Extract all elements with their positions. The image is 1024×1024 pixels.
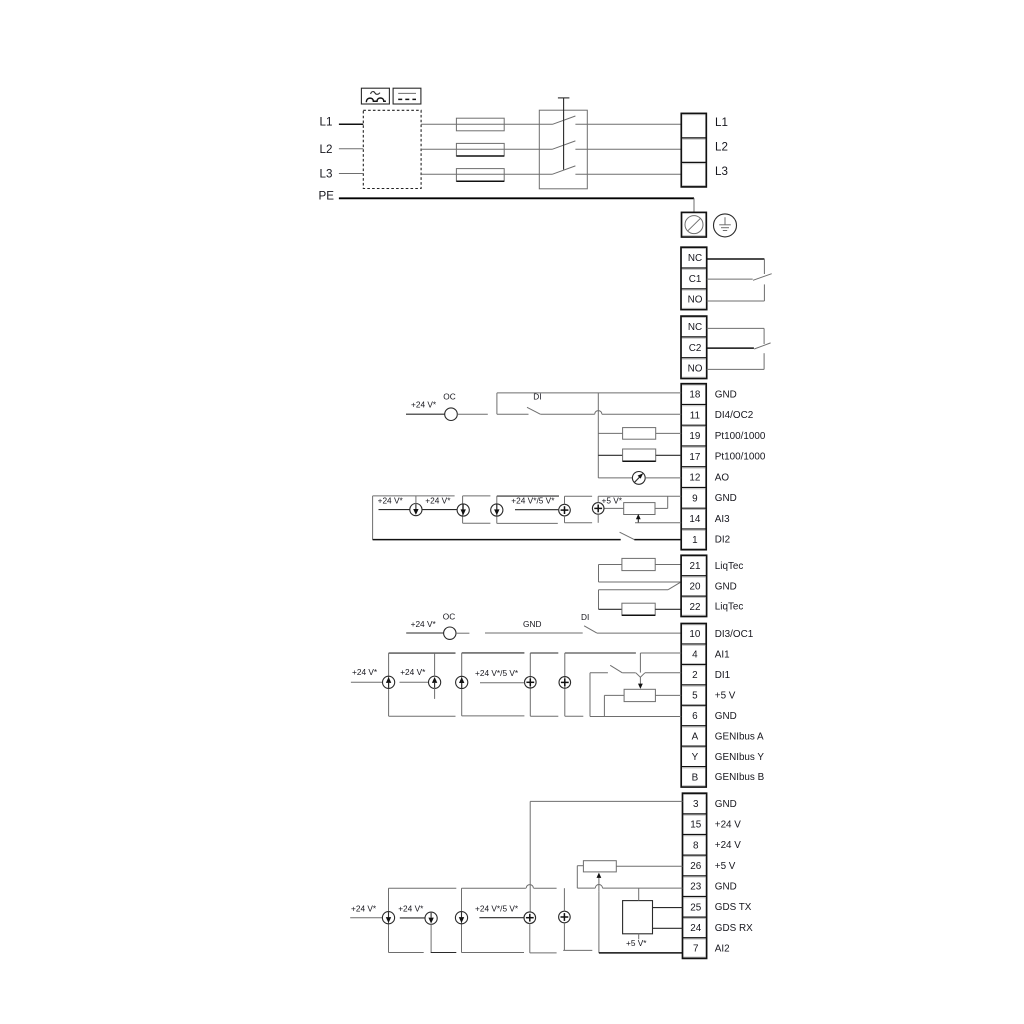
svg-text:+24 V*: +24 V* [411, 399, 437, 409]
svg-text:+5 V: +5 V [715, 861, 736, 872]
svg-text:12: 12 [689, 473, 700, 484]
svg-text:DI: DI [533, 392, 541, 402]
svg-text:Pt100/1000: Pt100/1000 [715, 431, 766, 442]
svg-text:DI3/OC1: DI3/OC1 [715, 629, 754, 640]
svg-text:A: A [692, 731, 699, 742]
svg-text:2: 2 [692, 670, 698, 681]
svg-text:NO: NO [688, 364, 703, 375]
svg-text:AI3: AI3 [715, 514, 730, 525]
svg-text:GND: GND [715, 882, 737, 893]
svg-text:L2: L2 [320, 143, 333, 156]
svg-text:19: 19 [689, 431, 700, 442]
svg-text:DI2: DI2 [715, 535, 730, 546]
svg-text:AO: AO [715, 472, 730, 483]
svg-text:9: 9 [692, 493, 698, 504]
svg-text:+5 V: +5 V [715, 690, 736, 701]
svg-text:8: 8 [693, 840, 699, 851]
svg-text:14: 14 [689, 514, 700, 525]
svg-text:OC: OC [443, 392, 455, 402]
svg-text:GND: GND [715, 799, 737, 810]
svg-text:GENIbus B: GENIbus B [715, 772, 765, 783]
svg-text:GDS TX: GDS TX [715, 902, 752, 913]
svg-text:NC: NC [688, 253, 702, 264]
svg-text:+24 V*: +24 V* [351, 903, 377, 913]
svg-text:DI1: DI1 [715, 670, 731, 681]
svg-text:OC: OC [443, 612, 455, 622]
svg-text:21: 21 [690, 561, 701, 572]
svg-text:C2: C2 [689, 343, 702, 354]
svg-text:LiqTec: LiqTec [715, 561, 744, 572]
svg-text:GDS RX: GDS RX [715, 923, 753, 934]
svg-text:C1: C1 [689, 274, 702, 285]
svg-text:6: 6 [692, 711, 698, 722]
svg-text:15: 15 [690, 820, 701, 831]
svg-text:10: 10 [689, 629, 700, 640]
svg-text:25: 25 [690, 902, 701, 913]
svg-text:GND: GND [715, 581, 737, 592]
svg-text:23: 23 [690, 882, 701, 893]
svg-text:22: 22 [690, 602, 701, 613]
svg-text:+24 V*: +24 V* [352, 667, 378, 677]
svg-text:L1: L1 [715, 116, 728, 129]
svg-text:1: 1 [692, 535, 698, 546]
svg-text:+24 V*: +24 V* [400, 667, 426, 677]
svg-text:11: 11 [690, 410, 701, 421]
svg-text:L3: L3 [715, 165, 728, 178]
svg-text:GND: GND [715, 493, 737, 504]
svg-text:+24 V*: +24 V* [378, 496, 404, 506]
svg-text:LiqTec: LiqTec [715, 602, 744, 613]
svg-text:AI2: AI2 [715, 943, 730, 954]
svg-text:+24 V*/5 V*: +24 V*/5 V* [475, 903, 519, 913]
svg-text:Pt100/1000: Pt100/1000 [715, 452, 766, 463]
svg-text:L2: L2 [715, 140, 728, 153]
svg-text:GND: GND [715, 389, 737, 400]
svg-text:3: 3 [693, 799, 699, 810]
svg-text:+5 V*: +5 V* [602, 496, 623, 506]
svg-text:7: 7 [693, 944, 699, 955]
svg-text:DI: DI [581, 612, 589, 622]
svg-text:Y: Y [692, 752, 699, 763]
svg-text:GENIbus Y: GENIbus Y [715, 752, 765, 763]
svg-text:+24 V*/5 V*: +24 V*/5 V* [511, 496, 555, 506]
svg-text:L3: L3 [320, 168, 333, 181]
svg-text:AI1: AI1 [715, 650, 730, 661]
svg-text:+24 V*: +24 V* [411, 619, 437, 629]
svg-text:DI4/OC2: DI4/OC2 [715, 410, 753, 421]
svg-text:GND: GND [715, 711, 737, 722]
svg-text:18: 18 [689, 390, 700, 401]
svg-text:+24 V*: +24 V* [398, 903, 424, 913]
svg-text:+24 V: +24 V [715, 840, 741, 851]
svg-text:5: 5 [692, 691, 698, 702]
svg-text:+24 V: +24 V [715, 820, 741, 831]
svg-text:GND: GND [523, 619, 541, 629]
svg-text:PE: PE [319, 190, 335, 203]
svg-text:+24 V*: +24 V* [425, 496, 451, 506]
svg-text:26: 26 [690, 861, 701, 872]
svg-text:NO: NO [688, 295, 703, 306]
svg-text:4: 4 [692, 650, 698, 661]
svg-text:24: 24 [690, 923, 701, 934]
svg-text:+24 V*/5 V*: +24 V*/5 V* [475, 668, 519, 678]
svg-text:+5 V*: +5 V* [626, 938, 647, 948]
svg-text:17: 17 [689, 452, 700, 463]
svg-text:B: B [692, 772, 699, 783]
svg-text:NC: NC [688, 322, 702, 333]
svg-text:20: 20 [690, 581, 701, 592]
svg-text:L1: L1 [320, 115, 333, 128]
svg-text:GENIbus A: GENIbus A [715, 731, 764, 742]
